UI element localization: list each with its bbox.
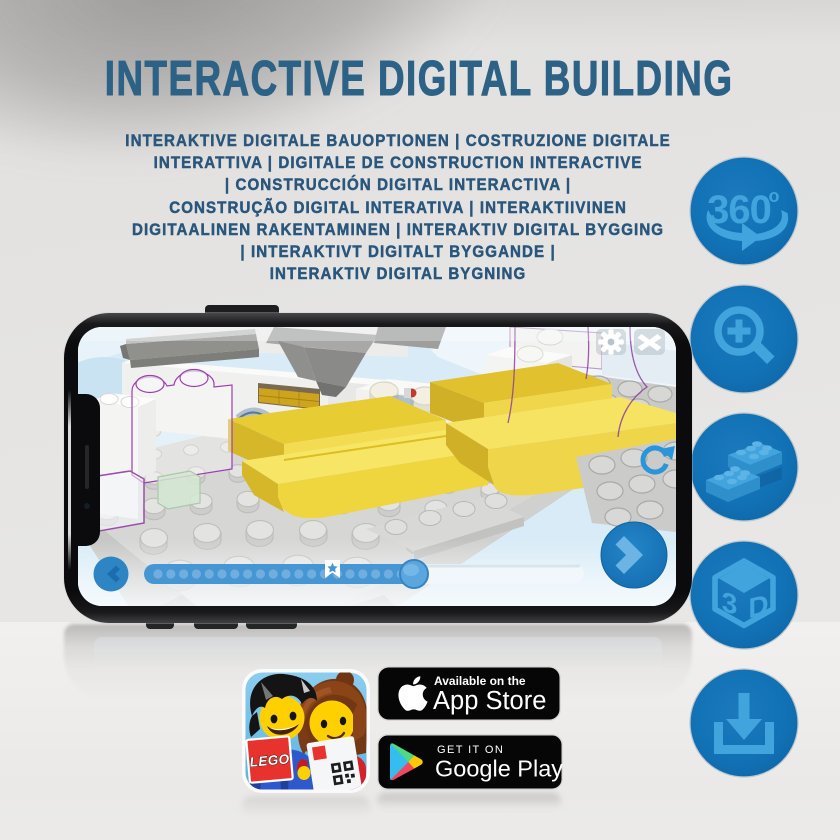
svg-text:3: 3	[722, 586, 738, 621]
svg-text:D: D	[748, 589, 768, 626]
svg-text:App Store: App Store	[433, 687, 546, 715]
svg-text:GET IT ON: GET IT ON	[437, 744, 504, 756]
svg-text:Google Play: Google Play	[435, 756, 563, 782]
svg-text:o: o	[769, 186, 780, 206]
svg-text:Available on the: Available on the	[434, 674, 526, 688]
